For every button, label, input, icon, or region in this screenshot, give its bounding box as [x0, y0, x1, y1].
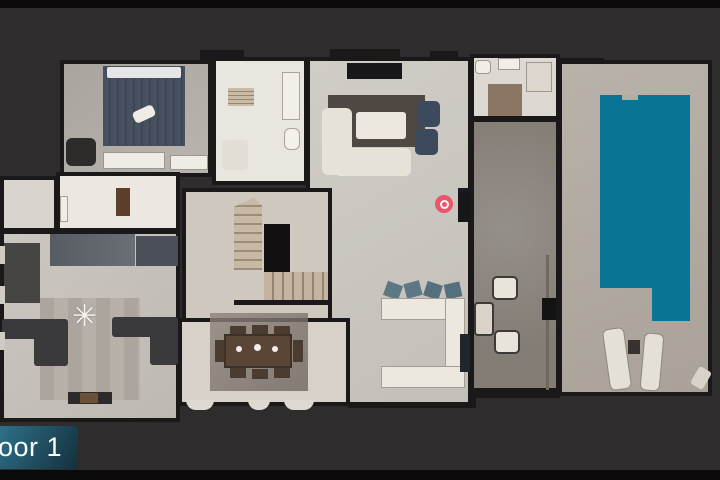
dresser: [103, 152, 165, 169]
armchair-dark: [66, 138, 96, 166]
patio-chair: [494, 330, 520, 354]
staircase-upper-flight: [234, 198, 262, 270]
tile-floor: [488, 84, 522, 116]
floor-banner-label: Floor 1: [0, 432, 62, 463]
bay-window: [186, 400, 214, 410]
room-closet[interactable]: [0, 176, 58, 232]
position-marker-ring: [440, 200, 449, 209]
window-gap: [0, 286, 5, 304]
refrigerator: [458, 192, 471, 222]
sectional-left-return: [34, 334, 68, 366]
media-console-shelf: [80, 393, 98, 403]
floorplan-viewport[interactable]: ✳ Floor 1: [0, 0, 720, 480]
place-setting: [254, 344, 261, 351]
dining-chair: [230, 368, 246, 378]
stair-railing: [234, 300, 328, 305]
sofa-cushions: [136, 236, 178, 266]
ceiling-fan-icon: ✳: [72, 302, 97, 332]
floorplan-canvas[interactable]: ✳: [0, 0, 720, 480]
bay-window: [248, 400, 270, 410]
kitchen-counter-bottom: [381, 366, 465, 388]
shower: [222, 140, 248, 170]
patio-divider: [546, 255, 549, 390]
pool: [600, 95, 690, 288]
side-table: [628, 340, 640, 354]
patio-lounger: [474, 302, 494, 336]
place-setting: [236, 346, 242, 352]
desk: [170, 155, 208, 170]
window-gap: [0, 246, 5, 264]
floor-banner: Floor 1: [0, 426, 78, 469]
sofa-cushions: [50, 234, 135, 266]
accent-chair-blue: [417, 101, 440, 127]
position-marker-dot: [442, 202, 447, 207]
position-marker: [435, 195, 453, 213]
rug-dark: [4, 243, 40, 303]
ottoman: [356, 112, 406, 139]
dining-table: [224, 334, 292, 368]
tv-console: [347, 63, 402, 79]
pool-edge-notch: [622, 95, 638, 100]
sink-fixture: [475, 60, 491, 74]
dining-chair: [252, 369, 268, 379]
window-gap: [0, 332, 5, 350]
staircase-lower-flight: [264, 272, 328, 302]
patio-chair: [492, 276, 518, 300]
accent-chair-blue: [415, 129, 438, 155]
console-table: [60, 196, 68, 222]
bay-window: [284, 400, 314, 410]
washer: [498, 58, 520, 70]
bath-vanity: [282, 72, 300, 120]
entry-rug: [116, 188, 130, 216]
bed-pillows: [107, 67, 181, 78]
pool-step-extension: [652, 287, 690, 321]
stairwell-void: [264, 224, 290, 272]
grill: [542, 298, 556, 320]
sectional-sofa-horizontal: [335, 148, 411, 176]
step-stairs-small: [228, 88, 254, 106]
sectional-right-return: [150, 333, 178, 365]
toilet: [284, 128, 300, 150]
dining-chair: [293, 340, 303, 362]
kitchen-appliance: [460, 334, 470, 372]
bench: [526, 62, 552, 92]
place-setting: [272, 346, 278, 352]
dining-chair: [274, 368, 290, 378]
